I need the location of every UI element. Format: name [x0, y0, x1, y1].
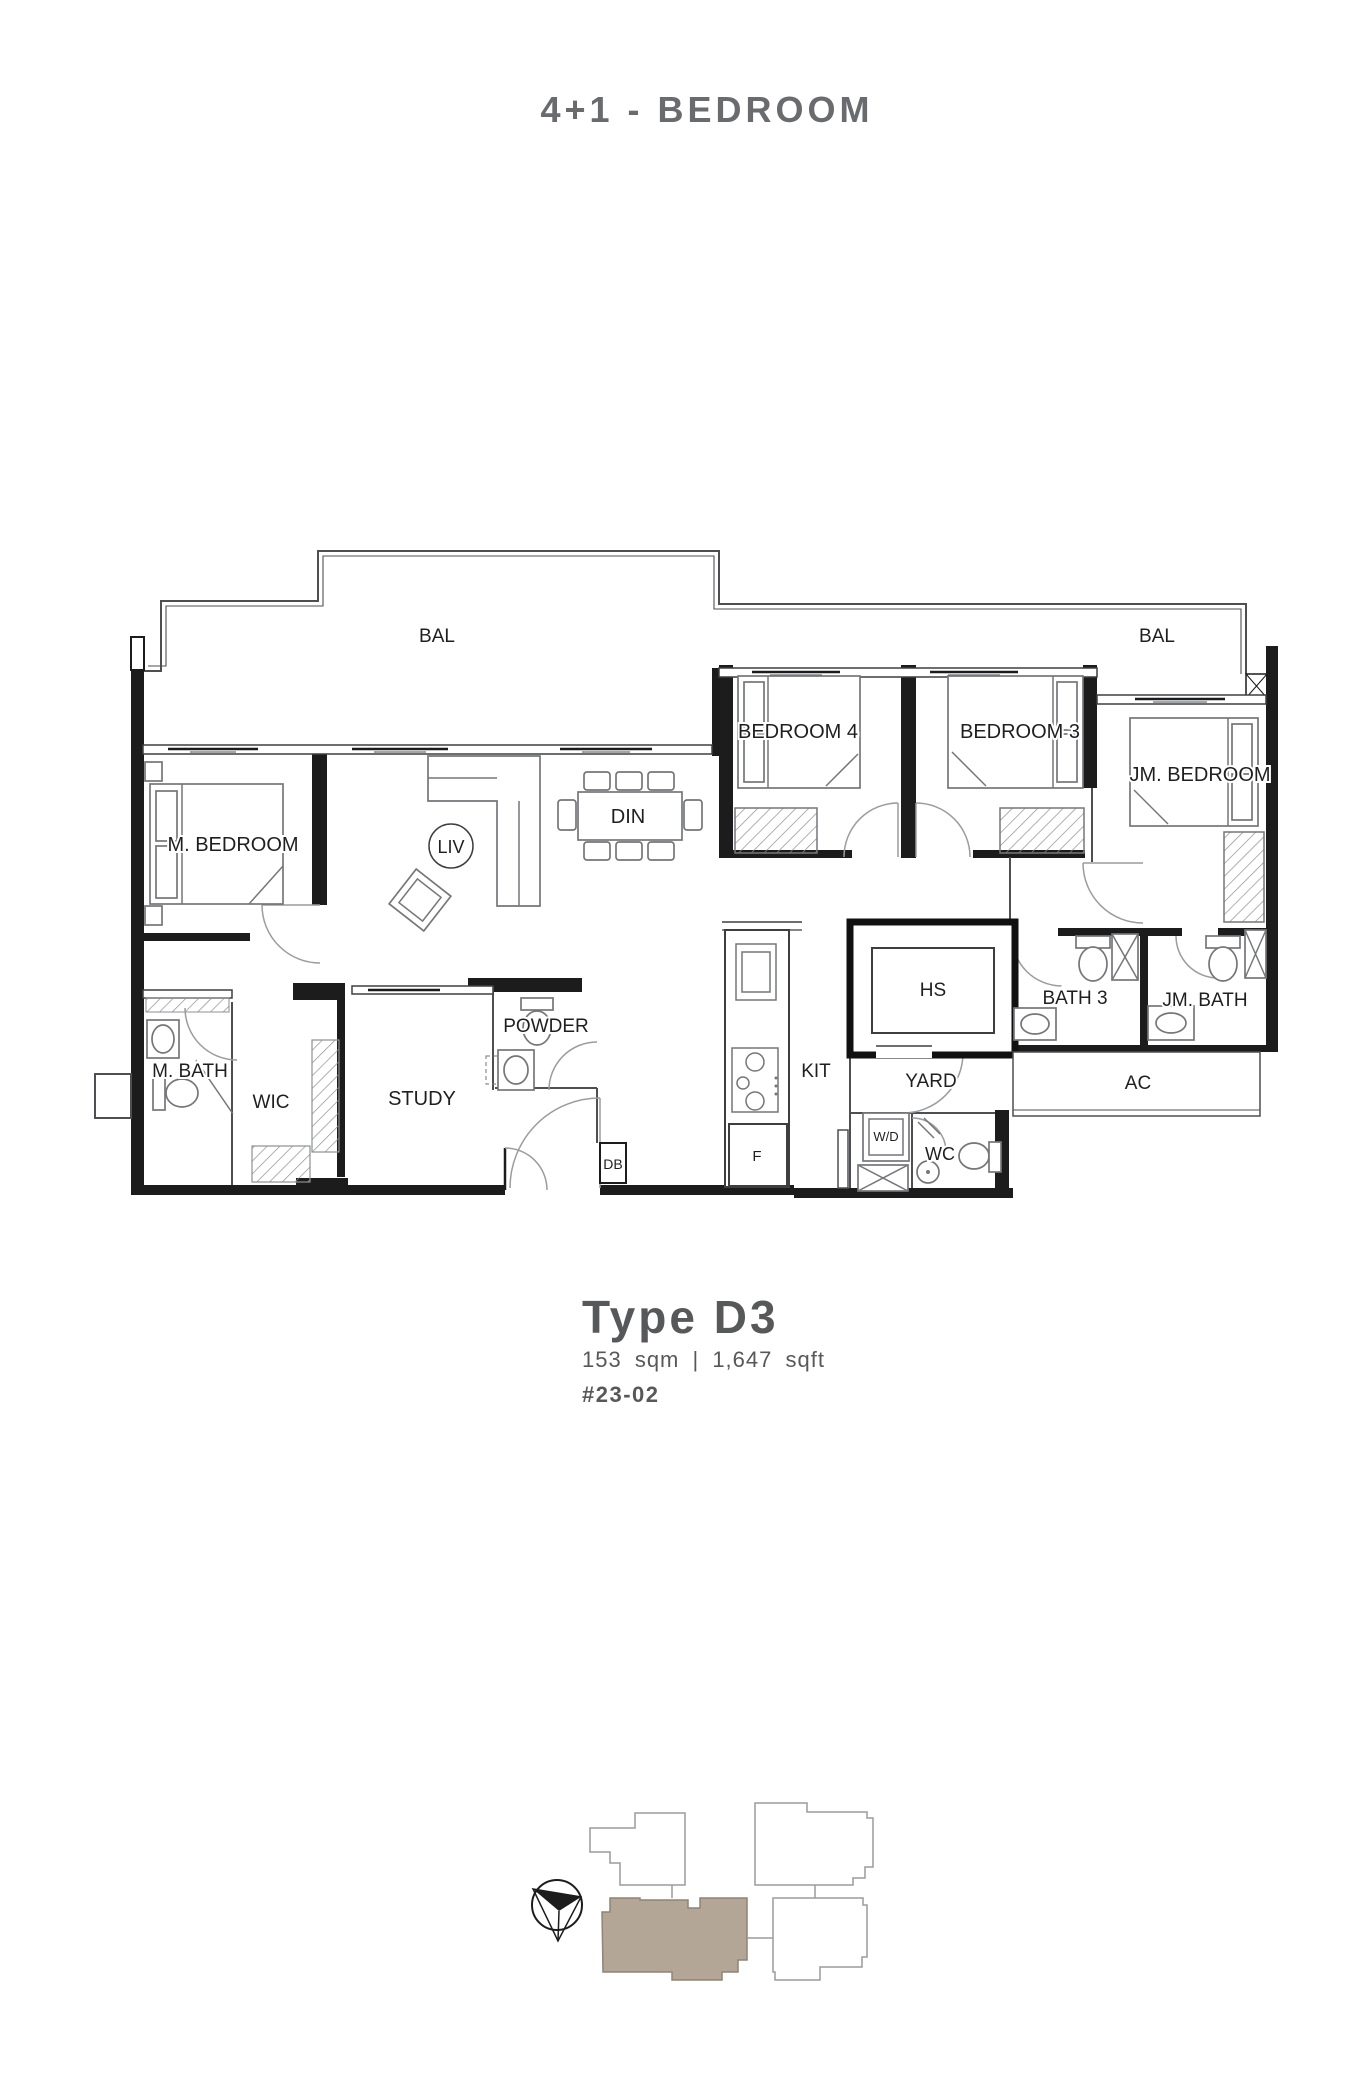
site-building-highlighted — [602, 1898, 747, 1980]
room-label-bal-left: BAL — [419, 626, 455, 647]
room-label-din: DIN — [611, 806, 645, 828]
room-label-hs: HS — [920, 980, 946, 1001]
page-title: 4+1 - BEDROOM — [540, 89, 873, 130]
room-label-fridge: F — [752, 1148, 761, 1165]
room-label-jm-bedroom: JM. BEDROOM — [1129, 764, 1270, 786]
room-label-wc: WC — [925, 1144, 955, 1164]
unit-area: 153 sqm | 1,647 sqft — [582, 1347, 825, 1372]
kitchen-fixtures — [600, 922, 802, 1187]
room-label-jm-bath: JM. BATH — [1162, 990, 1247, 1011]
room-label-wic: WIC — [253, 1092, 290, 1113]
living-room-furniture — [389, 756, 540, 931]
floorplan-drawing: 4+1 - BEDROOM — [0, 0, 1362, 2076]
site-key-plan — [532, 1803, 873, 1980]
site-building-1 — [590, 1813, 685, 1885]
room-label-ac: AC — [1125, 1073, 1151, 1094]
site-building-2 — [755, 1803, 873, 1885]
room-label-m-bedroom: M. BEDROOM — [167, 834, 298, 856]
floorplan-page: 4+1 - BEDROOM — [0, 0, 1362, 2076]
room-label-bath3: BATH 3 — [1042, 988, 1107, 1009]
unit-number: #23-02 — [582, 1382, 660, 1407]
room-label-bedroom4: BEDROOM 4 — [738, 721, 858, 743]
powder-fixtures — [486, 998, 553, 1090]
room-label-wd: W/D — [873, 1129, 898, 1144]
unit-type-name: Type D3 — [582, 1291, 779, 1343]
room-label-powder: POWDER — [503, 1016, 589, 1037]
bedroom3-furniture — [948, 676, 1084, 853]
jm-bath-fixtures — [1148, 930, 1266, 1040]
room-label-bedroom3: BEDROOM 3 — [960, 721, 1080, 743]
room-label-kit: KIT — [801, 1061, 831, 1082]
site-building-4 — [773, 1898, 867, 1980]
jm-bedroom-furniture — [1130, 718, 1264, 922]
room-label-liv: LIV — [437, 837, 464, 857]
room-label-m-bath: M. BATH — [152, 1061, 228, 1082]
north-arrow-icon — [532, 1880, 582, 1941]
bath3-fixtures — [1014, 934, 1138, 1040]
bedroom4-furniture — [735, 676, 860, 853]
room-label-db: DB — [603, 1156, 622, 1172]
room-label-study: STUDY — [388, 1088, 456, 1110]
room-label-bal-right: BAL — [1139, 626, 1175, 647]
room-label-yard: YARD — [905, 1071, 956, 1092]
unit-details: Type D3 153 sqm | 1,647 sqft #23-02 — [582, 1291, 825, 1407]
